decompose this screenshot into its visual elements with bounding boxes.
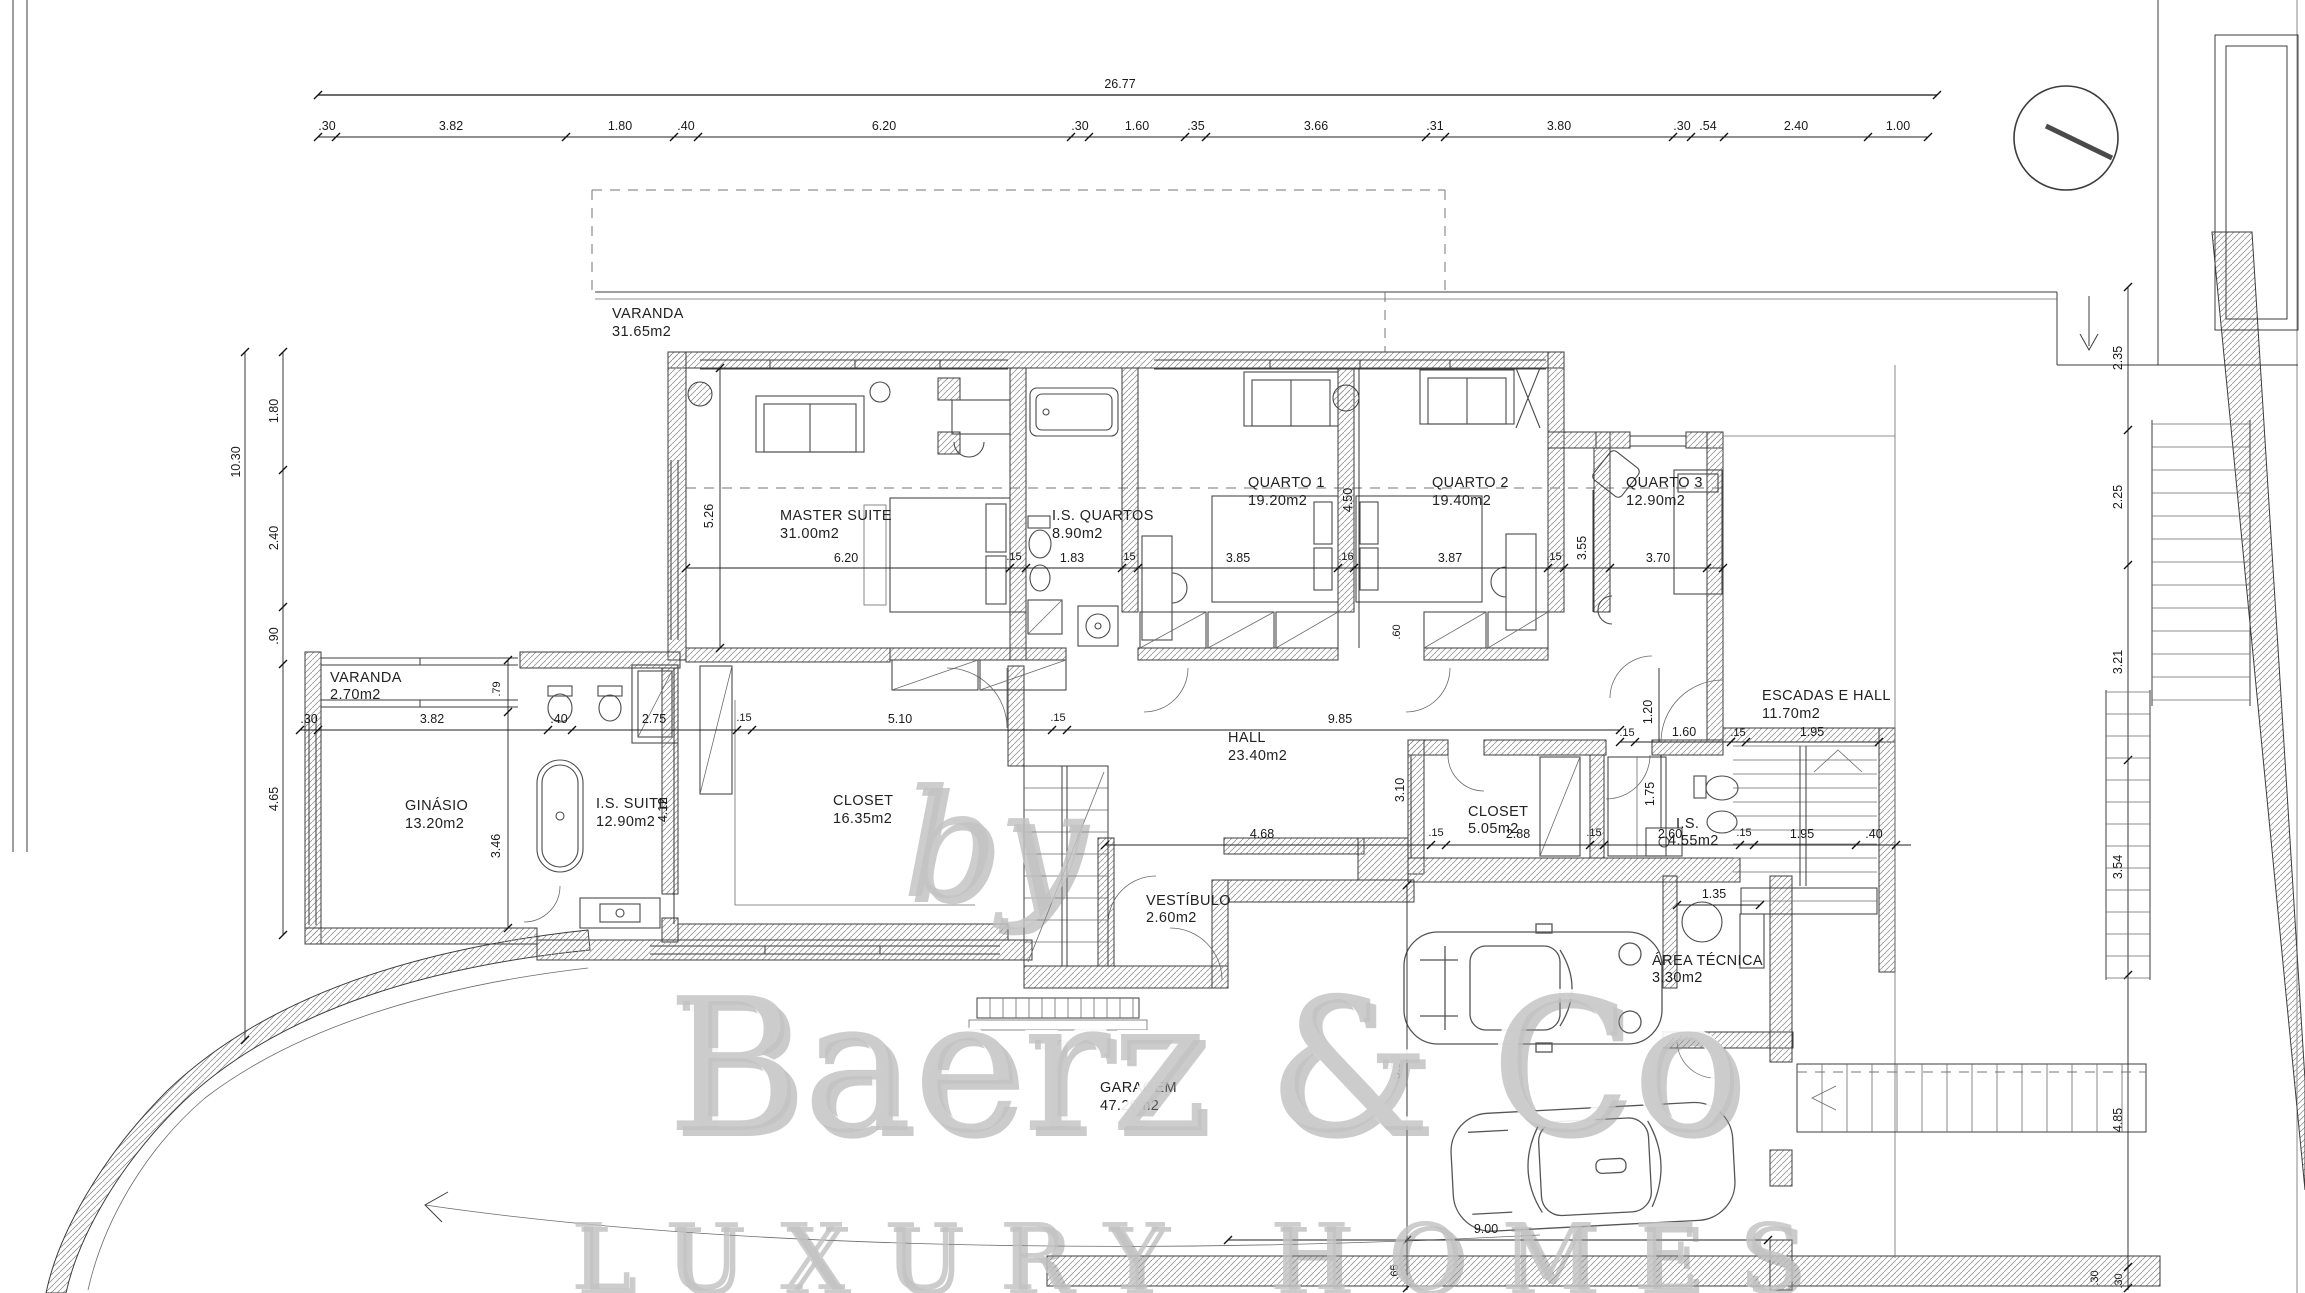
dim-quarto1-depth: 4.50	[1341, 488, 1355, 512]
dim-mid-4: 5.10	[888, 712, 912, 726]
room-area-ginasio: 13.20m2	[405, 816, 464, 832]
dim-wall15-a: .15	[1006, 551, 1021, 563]
dim-right-seg1: 2.25	[2111, 485, 2125, 509]
room-label-escadas: ESCADAS E HALL	[1762, 688, 1891, 704]
dim-stair-1: 1.95	[1800, 725, 1824, 739]
dim-top-seg2: 1.80	[608, 119, 632, 133]
dim-left-seg0: 1.80	[267, 399, 281, 423]
stairs-bottom-right	[1797, 1064, 2146, 1132]
dim-south-0: 4.68	[1250, 827, 1274, 841]
dim-master-width: 6.20	[834, 551, 858, 565]
dim-top-seg3: .40	[677, 119, 694, 133]
dim-quarto3-width: 3.70	[1646, 551, 1670, 565]
dim-varanda-depth: .79	[491, 681, 503, 696]
dim-quarto2-width: 3.87	[1438, 551, 1462, 565]
dim-south-4: .40	[1865, 827, 1882, 841]
furniture-master-suite	[756, 382, 1010, 612]
room-area-is2: 4.55m2	[1668, 833, 1719, 849]
dim-top-seg4: 6.20	[872, 119, 896, 133]
room-label-is-quartos: I.S. QUARTOS	[1052, 508, 1154, 524]
room-area-escadas: 11.70m2	[1762, 706, 1820, 722]
dim-left-seg1: 2.40	[267, 526, 281, 550]
dim-wardrobe-depth: .60	[1391, 624, 1403, 639]
dim-wall15-c: .15	[1546, 551, 1561, 563]
dim-wall15-d: .15	[736, 712, 751, 724]
dim-left-total: 10.30	[229, 446, 243, 477]
room-label-quarto1: QUARTO 1	[1248, 475, 1325, 491]
dim-closet-row: 3.10	[1393, 778, 1407, 802]
dim-wall15-b: .15	[1120, 551, 1135, 563]
dim-left-seg3: 4.65	[267, 787, 281, 811]
dim-mid-0: .30	[300, 712, 317, 726]
dim-right-seg4: 4.85	[2111, 1108, 2125, 1132]
room-area-varanda-top: 31.65m2	[612, 324, 671, 340]
dim-mid-1: 3.82	[420, 712, 444, 726]
dimension-chain-left: 10.30 1.80 2.40 .90 4.65	[229, 348, 287, 1044]
dim-wall15-e: .15	[1050, 712, 1065, 724]
wardrobes-hall	[1140, 612, 1548, 648]
dim-left-seg2: .90	[267, 627, 281, 644]
room-label-is2: I.S.	[1676, 816, 1699, 832]
dim-wall15-h: .15	[1428, 827, 1443, 839]
room-area-is-suite: 12.90m2	[596, 814, 655, 830]
dim-wall15-g: .15	[1730, 727, 1745, 739]
dim-top-seg12: .54	[1699, 119, 1716, 133]
dim-wall16: .16	[1338, 551, 1353, 563]
dimension-chain-mid: .30 3.82 .40 2.75 .15 5.10 .15 9.85	[296, 712, 1624, 734]
dimension-chain-right: 2.35 2.25 3.21 3.54 4.85 .30	[2111, 283, 2132, 1292]
room-area-is-quartos: 8.90m2	[1052, 526, 1103, 542]
room-label-closet-master: CLOSET	[833, 793, 893, 809]
dimension-area-tecnica: 1.35	[1673, 887, 1764, 909]
entry-arrow-icon	[2080, 296, 2098, 350]
dim-is-wc: 1.75	[1643, 782, 1657, 806]
dim-top-seg1: 3.82	[439, 119, 463, 133]
dim-right-seg3: 3.54	[2111, 855, 2125, 879]
room-label-ginasio: GINÁSIO	[405, 797, 468, 814]
roof-overhang-lines	[592, 190, 2057, 488]
dim-area-tecnica: 1.35	[1702, 887, 1726, 901]
dim-top-seg9: .31	[1426, 119, 1443, 133]
room-area-closet2: 5.05m2	[1468, 821, 1519, 837]
room-label-varanda-small: VARANDA	[330, 670, 402, 686]
north-indicator-icon	[2014, 86, 2118, 190]
dim-top-seg14: 1.00	[1886, 119, 1910, 133]
dim-mid-3: 2.75	[642, 712, 666, 726]
dim-mid-2: .40	[550, 712, 567, 726]
dim-mid-5: 9.85	[1328, 712, 1352, 726]
watermark-tagline: LUXURY HOMES	[570, 1204, 1839, 1293]
furniture-quarto1	[1142, 372, 1338, 640]
dim-bottom-right: .30	[2089, 1270, 2101, 1285]
room-label-vestibulo: VESTÍBULO	[1146, 892, 1231, 909]
dim-top-seg6: 1.60	[1125, 119, 1149, 133]
dim-stair-top: 1.20	[1641, 700, 1655, 724]
room-label-is-suite: I.S. SUITE	[596, 796, 669, 812]
watermark-by: by	[902, 758, 1085, 932]
dim-isquartos-width: 1.83	[1060, 551, 1084, 565]
room-label-varanda-top: VARANDA	[612, 306, 684, 322]
dim-right-seg2: 3.21	[2111, 650, 2125, 674]
floor-plan-drawing: 26.77 .30 3.82 1.80 .40 6.20 .30 1.60 .3…	[0, 0, 2305, 1293]
watermark: by by Baerz & Co Baerz & Co Baerz & Co L…	[570, 758, 1845, 1293]
room-label-quarto3: QUARTO 3	[1626, 475, 1703, 491]
dim-top-seg13: 2.40	[1784, 119, 1808, 133]
dim-top-seg11: .30	[1673, 119, 1690, 133]
room-area-quarto3: 12.90m2	[1626, 493, 1685, 509]
room-area-quarto1: 19.20m2	[1248, 493, 1307, 509]
floor-plan-page: 26.77 .30 3.82 1.80 .40 6.20 .30 1.60 .3…	[0, 0, 2305, 1293]
room-label-closet2: CLOSET	[1468, 804, 1528, 820]
dim-wall15-f: .15	[1619, 727, 1634, 739]
room-area-master-suite: 31.00m2	[780, 526, 839, 542]
dim-top-seg8: 3.66	[1304, 119, 1328, 133]
room-area-closet-master: 16.35m2	[833, 811, 892, 827]
dim-top-seg10: 3.80	[1547, 119, 1571, 133]
room-area-vestibulo: 2.60m2	[1146, 910, 1197, 926]
dim-ginasio-depth: 3.46	[489, 834, 503, 858]
room-area-hall: 23.40m2	[1228, 748, 1287, 764]
dim-top-seg0: .30	[318, 119, 335, 133]
room-label-hall: HALL	[1228, 730, 1266, 746]
room-area-varanda-small: 2.70m2	[330, 687, 381, 703]
dim-top-total: 26.77	[1104, 77, 1135, 91]
dim-south-3: 1.95	[1790, 827, 1814, 841]
room-area-quarto2: 19.40m2	[1432, 493, 1491, 509]
room-label-quarto2: QUARTO 2	[1432, 475, 1509, 491]
dim-stair-0: 1.60	[1672, 725, 1696, 739]
dim-wall15-i: .15	[1586, 827, 1601, 839]
dim-top-seg5: .30	[1071, 119, 1088, 133]
dim-master-depth: 5.26	[702, 504, 716, 528]
dim-quarto3-left: 3.55	[1575, 536, 1589, 560]
watermark-brand: Baerz & Co	[667, 958, 1744, 1174]
room-label-master-suite: MASTER SUITE	[780, 508, 892, 524]
dim-right-seg5: .30	[2113, 1273, 2125, 1288]
dim-wall15-j: .15	[1736, 827, 1751, 839]
dim-top-seg7: .35	[1187, 119, 1204, 133]
dimension-chain-bedrooms: 6.20 .15 1.83 .15 3.85 .16 3.87 .15 3.70	[682, 551, 1727, 572]
dimension-chain-top: 26.77 .30 3.82 1.80 .40 6.20 .30 1.60 .3…	[314, 77, 1941, 141]
dim-right-seg0: 2.35	[2111, 346, 2125, 370]
dim-quarto1-width: 3.85	[1226, 551, 1250, 565]
